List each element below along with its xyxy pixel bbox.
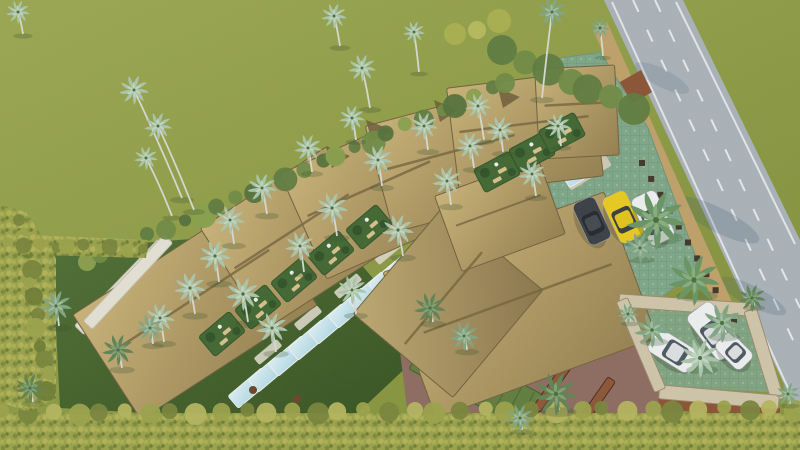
deco-lantern-post: [249, 386, 257, 394]
deco-lantern-post: [293, 395, 301, 403]
resort-aerial-render: [0, 0, 800, 450]
scene-canvas: [0, 0, 800, 450]
